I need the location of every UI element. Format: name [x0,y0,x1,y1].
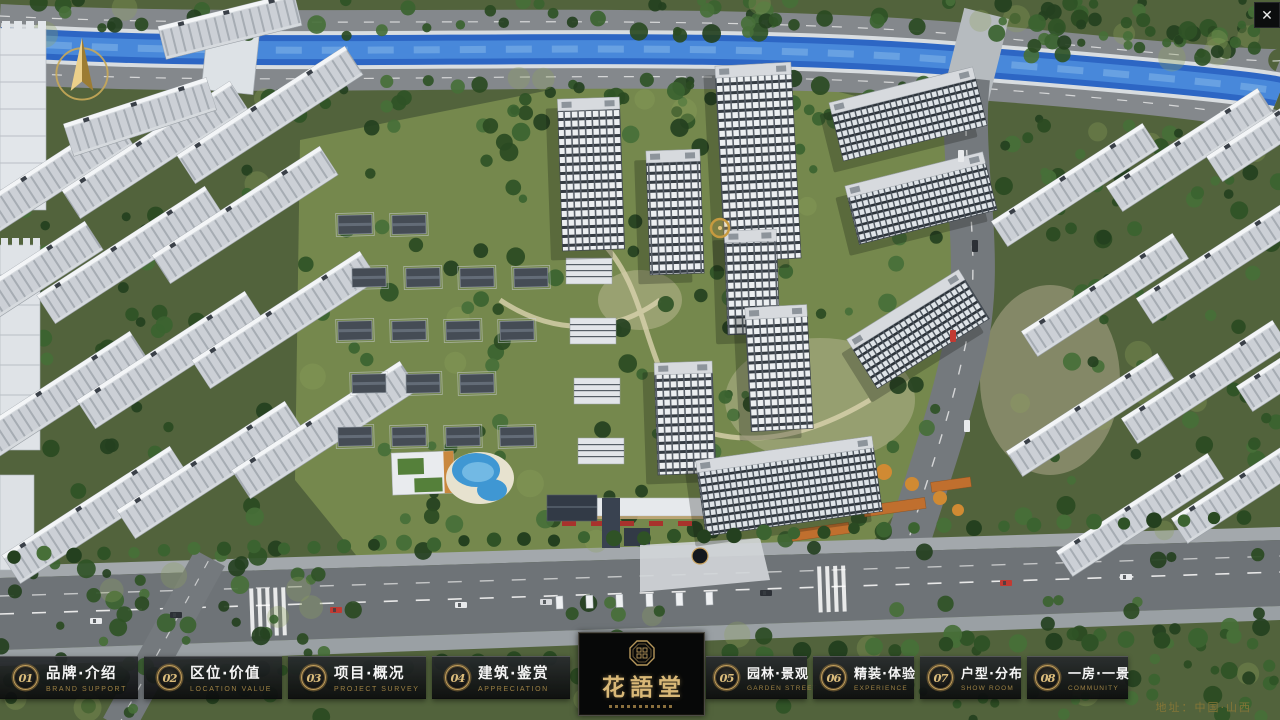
nav-label-en: EXPERIENCE [854,685,914,692]
nav-item-interior[interactable]: 06 精装·体验 EXPERIENCE [813,656,914,699]
nav-number-badge: 04 [445,665,470,690]
nav-label-cn: 园林·景观 [747,663,807,682]
nav-number-badge: 01 [13,665,38,690]
nav-number-badge: 05 [714,665,739,690]
nav-label-cn: 区位·价值 [190,662,272,683]
nav-label-cn: 品牌·介绍 [46,662,127,683]
presentation-root: ✕ 01 品牌·介绍 BRAND SUPPORT 02 区位·价值 LOCATI… [0,0,1280,720]
nav-item-project[interactable]: 03 项目·概况 PROJECT SURVEY [288,656,426,699]
nav-item-architecture[interactable]: 04 建筑·鉴赏 APPRECIATION [432,656,570,699]
nav-item-brand[interactable]: 01 品牌·介绍 BRAND SUPPORT [0,656,138,699]
nav-label-en: GARDEN STREET [747,685,807,692]
nav-label-cn: 一房·一景 [1068,663,1128,682]
logo-subtitle-divider [609,705,675,708]
logo-panel[interactable]: 花語堂 [578,632,705,716]
nav-label-en: COMMUNITY [1068,685,1128,692]
nav-label-en: PROJECT SURVEY [334,686,420,693]
nav-group-right: 05 园林·景观 GARDEN STREET 06 精装·体验 EXPERIEN… [706,656,1128,699]
nav-label-cn: 项目·概况 [334,662,420,683]
nav-label-cn: 建筑·鉴赏 [478,662,549,683]
octagon-seal-icon [629,640,655,666]
nav-label-en: SHOW ROOM [961,685,1021,692]
address-text: 地址：中国·山西 [1156,699,1253,715]
nav-number-badge: 08 [1035,665,1060,690]
nav-number-badge: 07 [928,665,953,690]
nav-item-location[interactable]: 02 区位·价值 LOCATION VALUE [144,656,282,699]
nav-group-left: 01 品牌·介绍 BRAND SUPPORT 02 区位·价值 LOCATION… [0,656,570,699]
nav-label-en: LOCATION VALUE [190,686,272,693]
nav-label-en: APPRECIATION [478,686,549,693]
nav-number-badge: 06 [821,665,846,690]
nav-item-floorplan[interactable]: 07 户型·分布 SHOW ROOM [920,656,1021,699]
clubhouse [391,451,454,495]
logo-title: 花語堂 [597,668,686,702]
nav-label-cn: 精装·体验 [854,663,914,682]
nav-label-en: BRAND SUPPORT [46,686,127,693]
nav-item-community[interactable]: 08 一房·一景 COMMUNITY [1027,656,1128,699]
swimming-pool [446,452,514,504]
masterplan-render[interactable] [0,0,1280,720]
close-button[interactable]: ✕ [1254,2,1280,28]
bottom-nav: 01 品牌·介绍 BRAND SUPPORT 02 区位·价值 LOCATION… [0,624,1280,720]
nav-item-garden[interactable]: 05 园林·景观 GARDEN STREET [706,656,807,699]
nav-label-cn: 户型·分布 [961,663,1021,682]
nav-number-badge: 03 [301,665,326,690]
compass-icon[interactable] [44,34,120,110]
nav-number-badge: 02 [157,665,182,690]
